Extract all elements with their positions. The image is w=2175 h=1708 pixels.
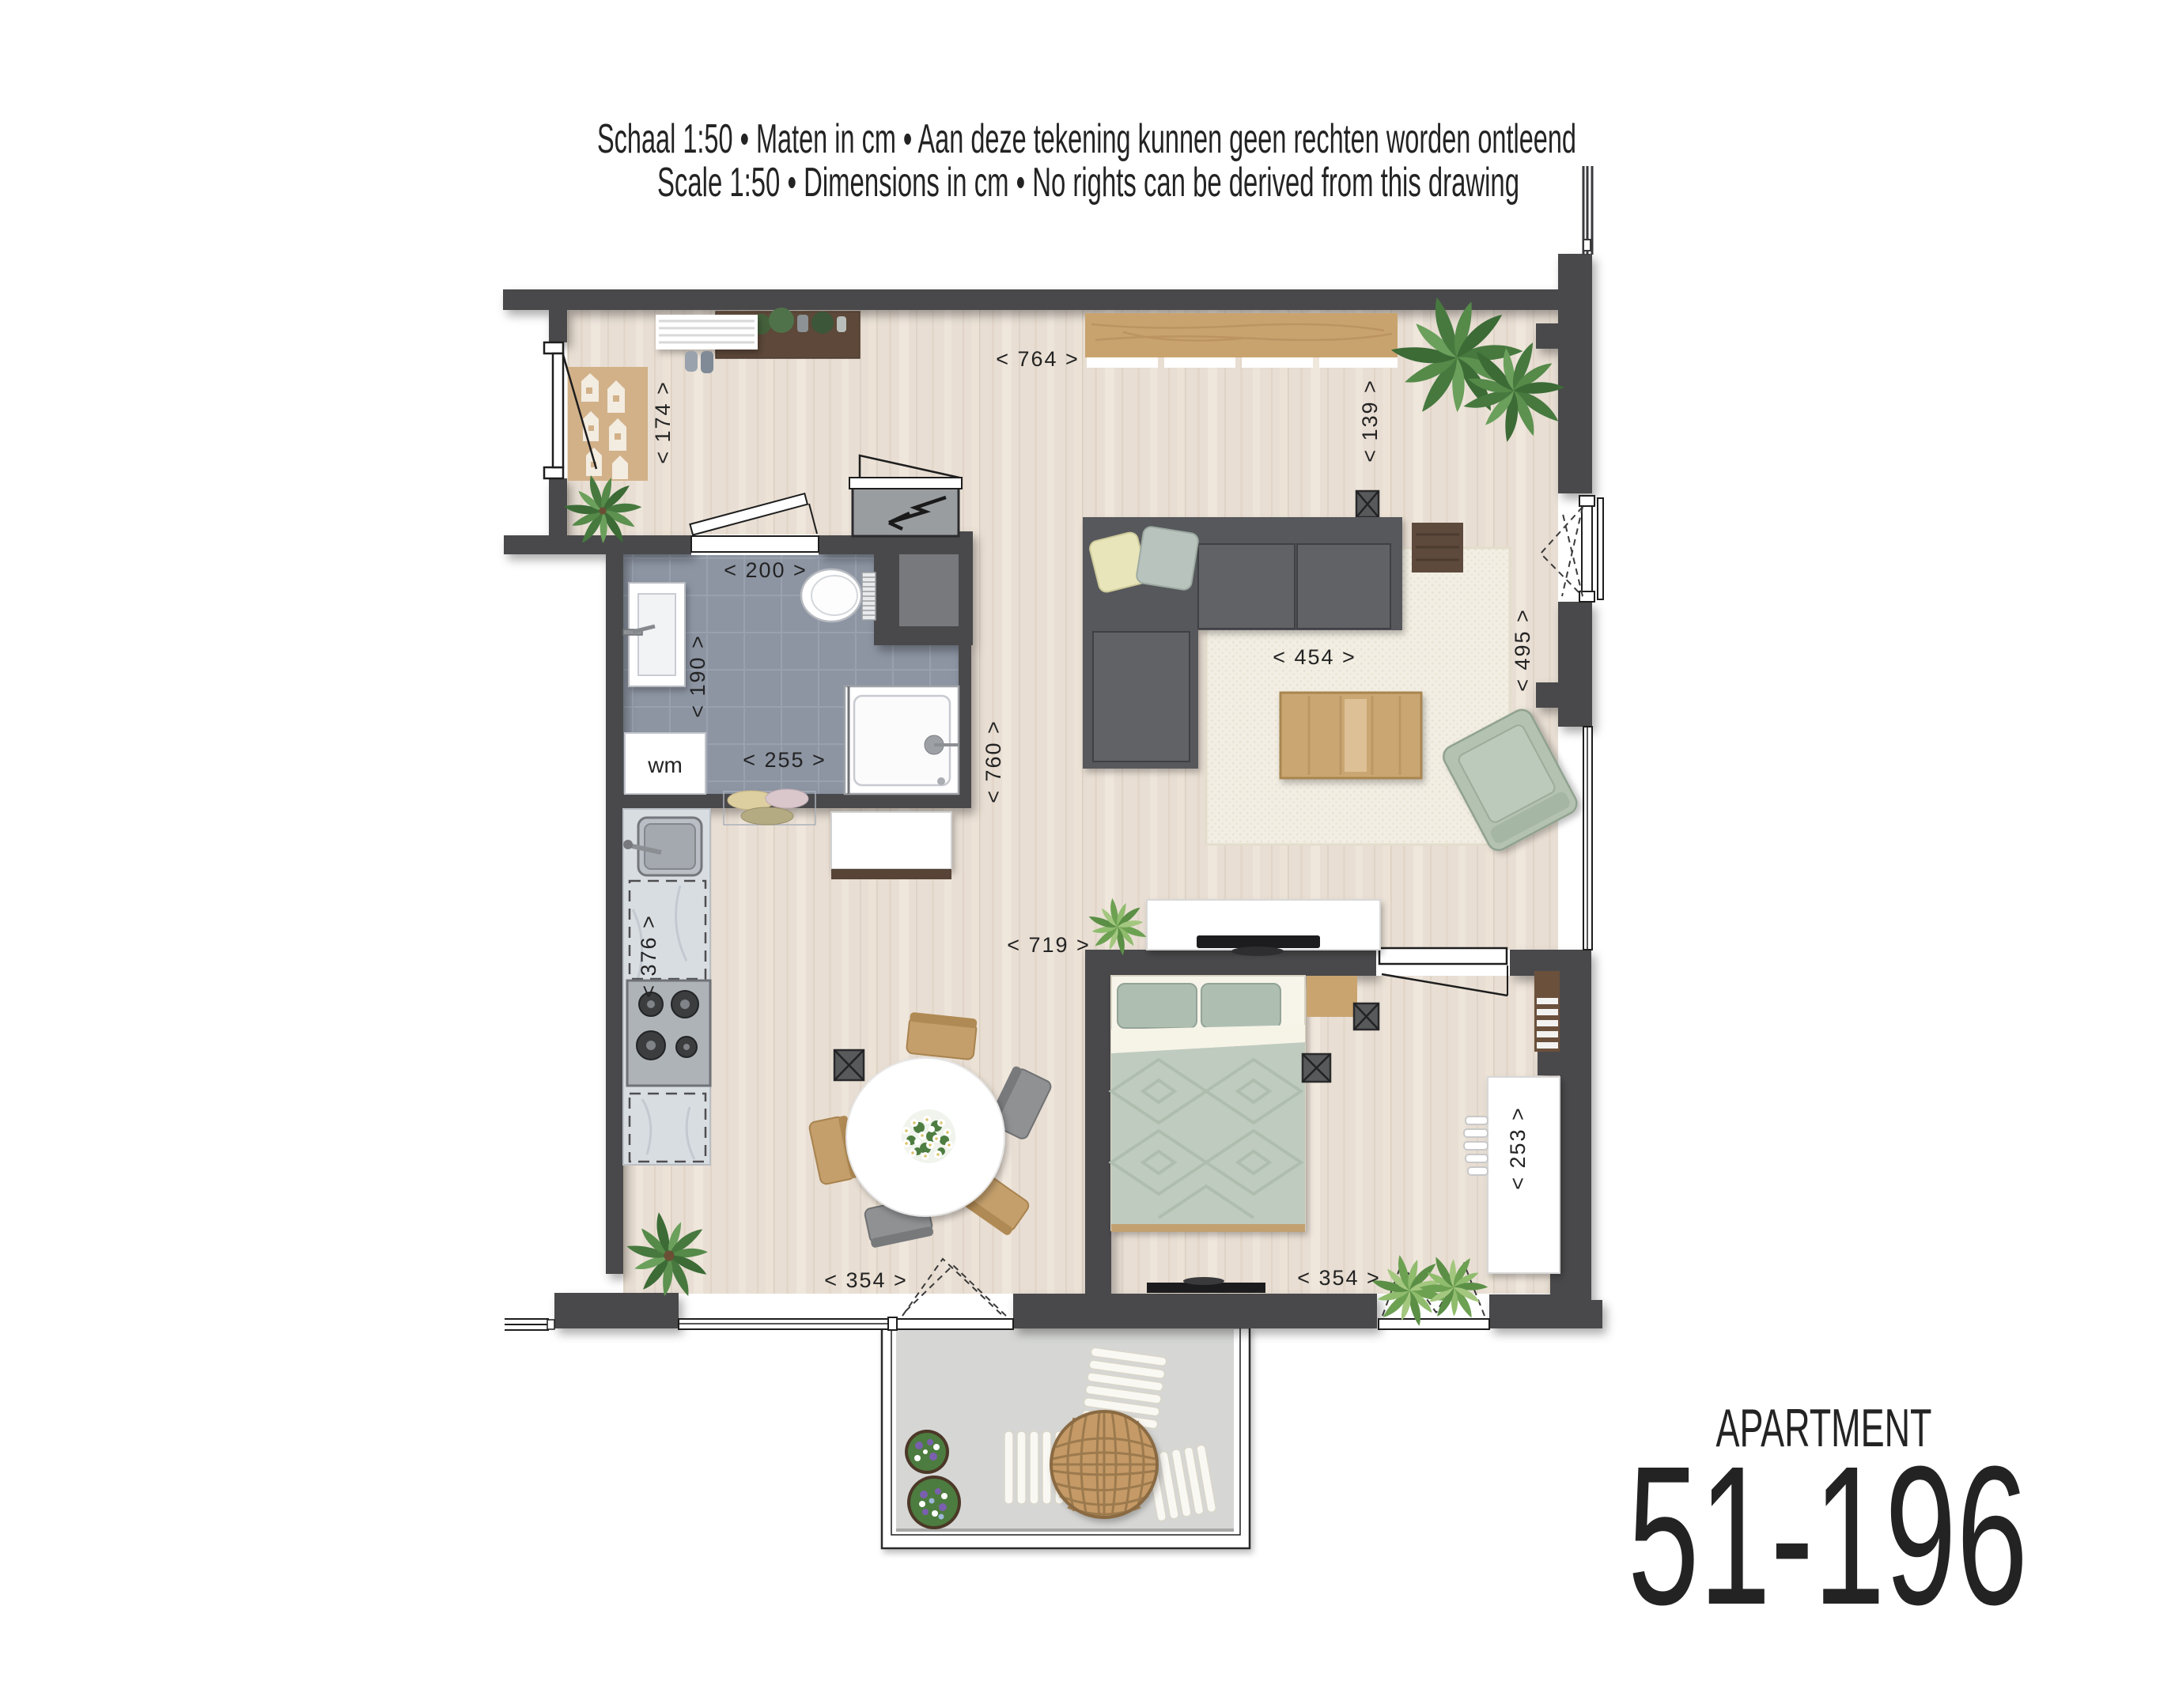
svg-text:< 760 >: < 760 >: [982, 720, 1005, 803]
svg-text:< 495 >: < 495 >: [1511, 608, 1534, 692]
svg-text:wm: wm: [647, 753, 683, 777]
svg-text:Schaal 1:50 • Maten in cm • Aa: Schaal 1:50 • Maten in cm • Aan deze tek…: [597, 116, 1576, 162]
svg-text:< 376 >: < 376 >: [637, 914, 660, 998]
svg-text:< 719 >: < 719 >: [1007, 933, 1091, 957]
svg-text:< 139 >: < 139 >: [1358, 379, 1382, 463]
svg-text:< 255 >: < 255 >: [743, 748, 826, 772]
svg-text:Scale 1:50 • Dimensions in cm: Scale 1:50 • Dimensions in cm • No right…: [657, 160, 1519, 206]
svg-text:< 354 >: < 354 >: [1297, 1266, 1381, 1290]
svg-text:< 454 >: < 454 >: [1273, 645, 1356, 669]
svg-text:< 253 >: < 253 >: [1506, 1106, 1530, 1190]
svg-text:< 190 >: < 190 >: [686, 634, 709, 718]
svg-text:< 174 >: < 174 >: [651, 380, 675, 464]
svg-text:< 200 >: < 200 >: [724, 558, 808, 582]
svg-text:< 354 >: < 354 >: [824, 1268, 908, 1292]
svg-text:51-196: 51-196: [1628, 1425, 2028, 1646]
svg-text:< 764 >: < 764 >: [996, 347, 1080, 371]
